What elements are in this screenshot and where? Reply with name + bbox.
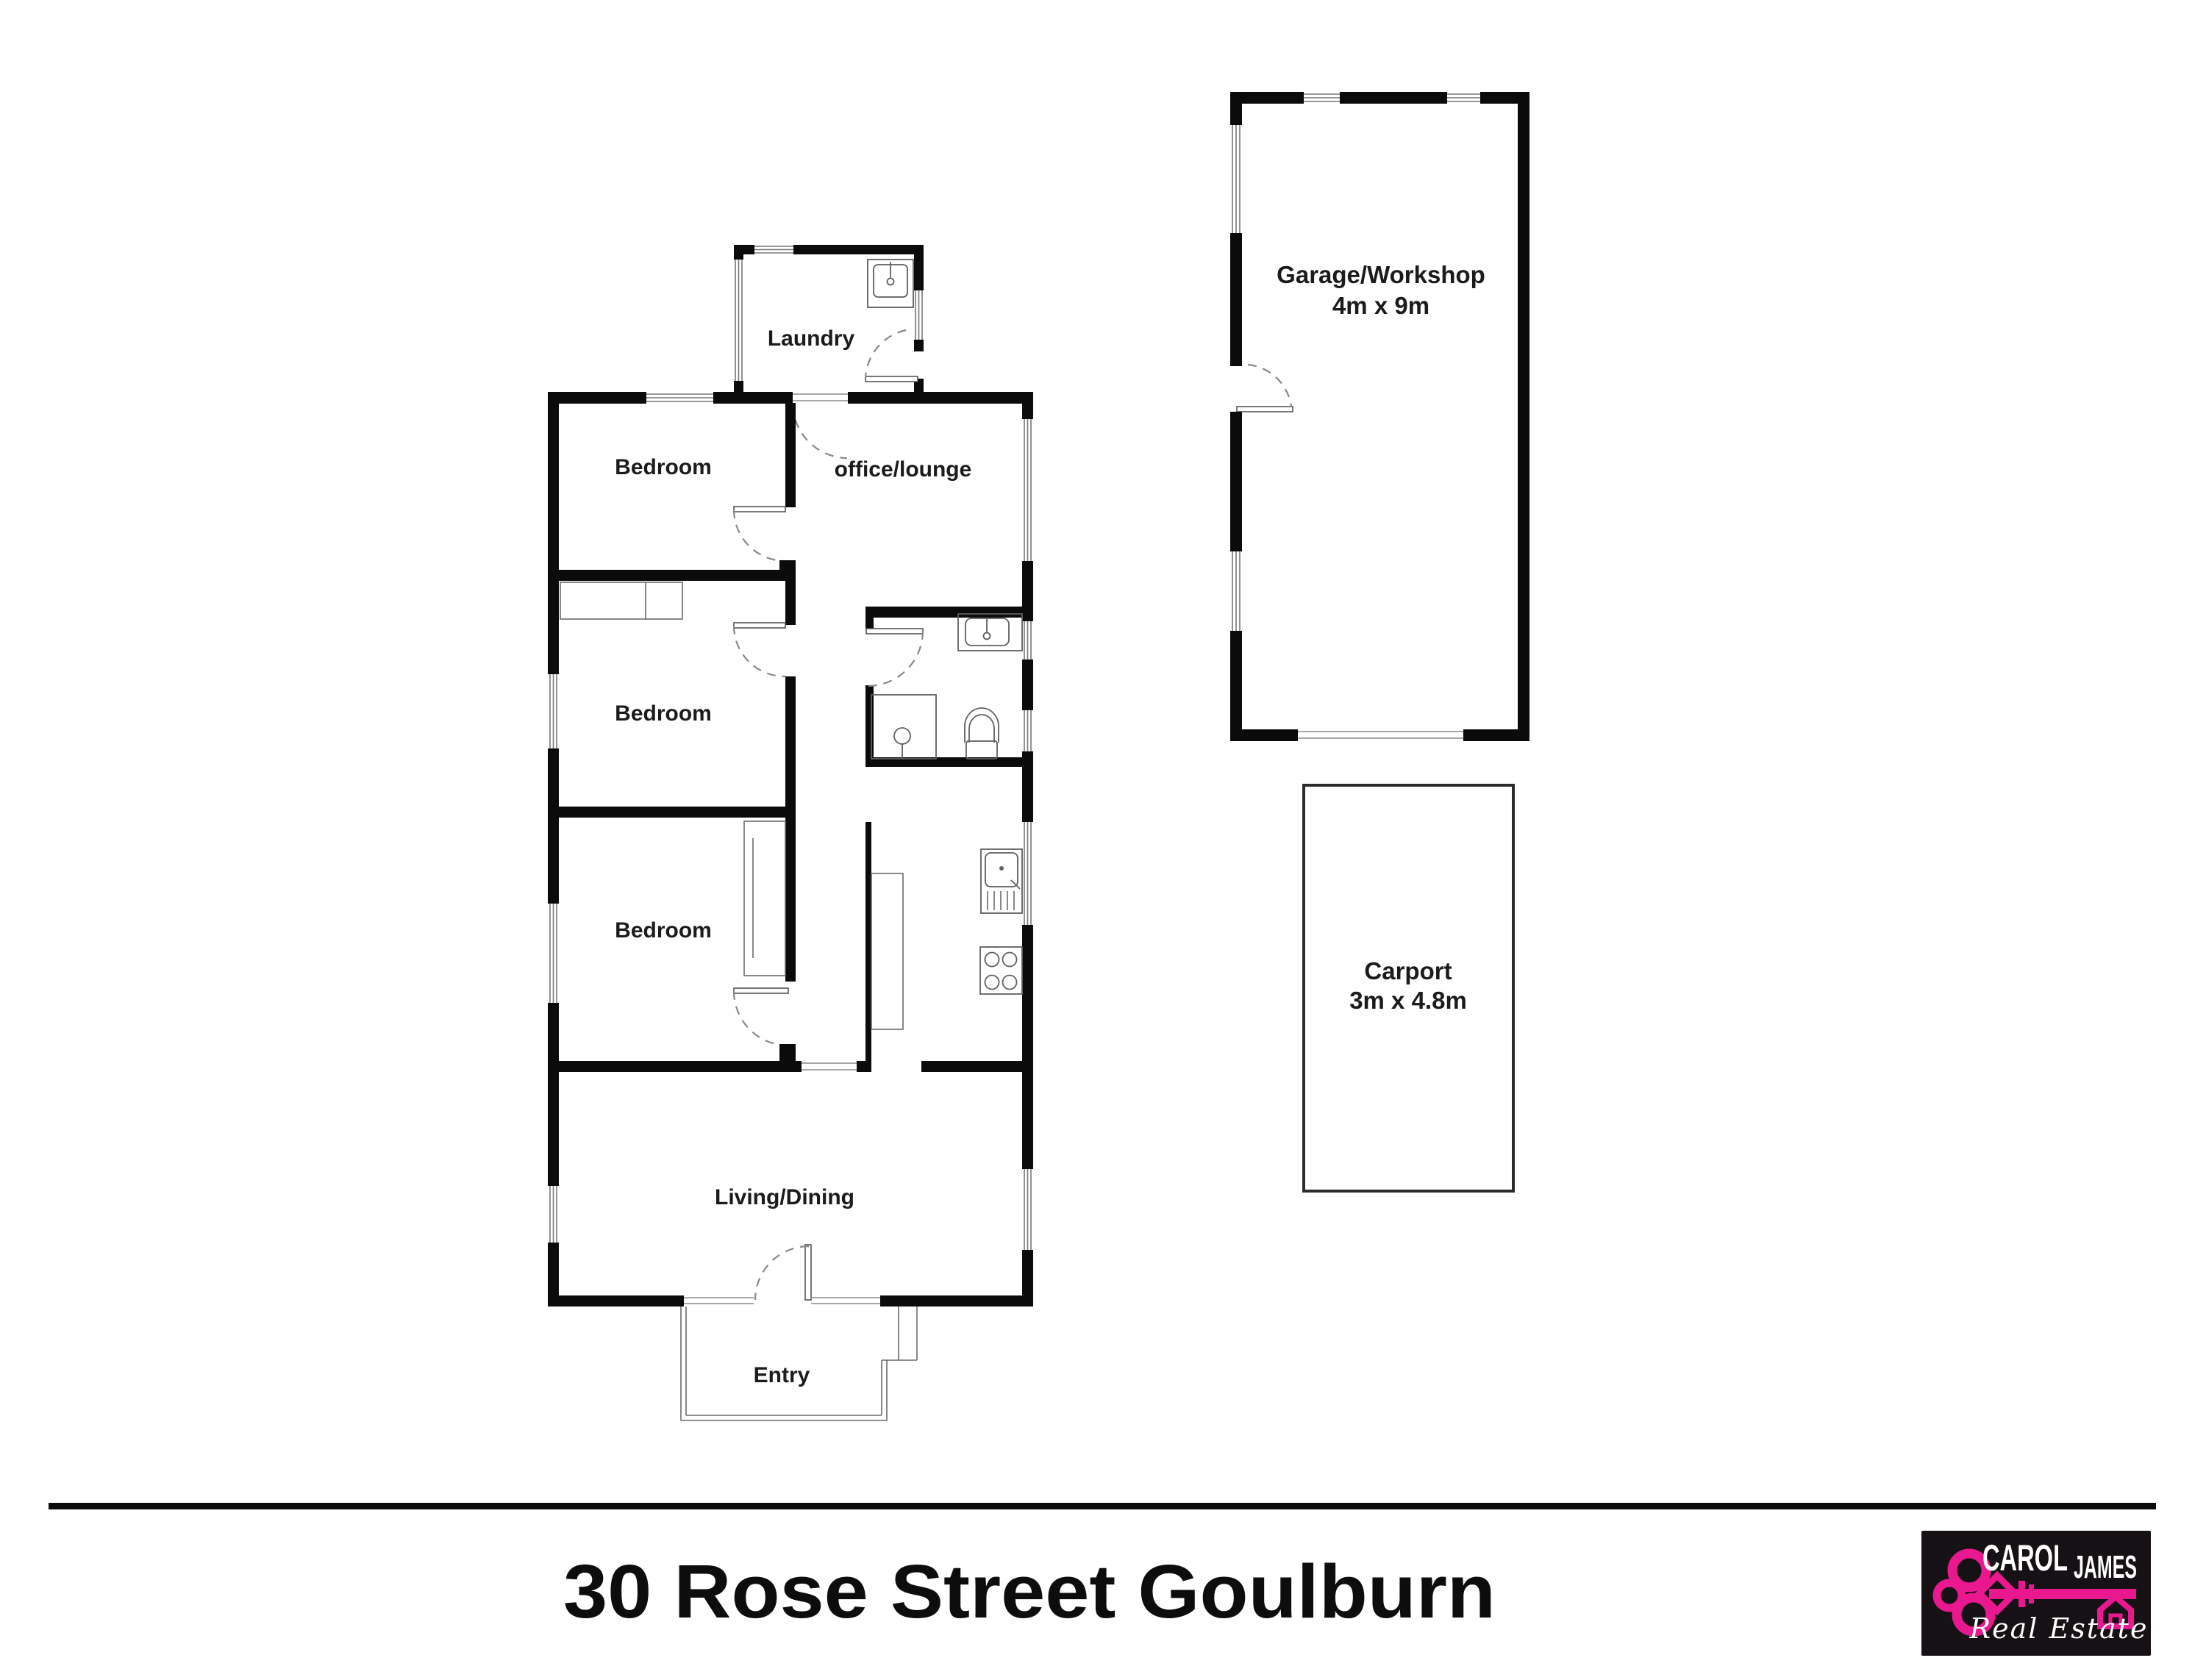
kitchen-bench <box>871 873 903 1029</box>
laundry-doorway-threshold <box>793 394 848 401</box>
address-title: 30 Rose Street Goulburn <box>563 1549 1496 1634</box>
garage-door-leaf <box>1237 407 1293 412</box>
window-garage-left-2 <box>1232 551 1240 631</box>
entry-door-leaf <box>805 1245 811 1300</box>
bedroom1-door-leaf <box>734 507 785 512</box>
label-laundry: Laundry <box>768 326 855 351</box>
floorplan-drawing: Bedroom Bedroom Bedroom Laundry office/l… <box>0 0 2206 1680</box>
bedroom3-door-leaf <box>734 988 788 993</box>
entry-door-arc <box>755 1246 809 1300</box>
shower <box>871 695 936 759</box>
label-bedroom1: Bedroom <box>615 455 712 479</box>
separator-line <box>49 1503 2156 1509</box>
label-living: Living/Dining <box>715 1185 854 1209</box>
agency-logo: CAROL JAMES Real Estate <box>1921 1531 2151 1656</box>
label-bedroom2: Bedroom <box>615 701 712 726</box>
carport: Carport 3m x 4.8m <box>1304 785 1513 1191</box>
bedroom3-partition <box>734 818 796 1061</box>
window-laundry-top <box>754 246 793 253</box>
label-bedroom3: Bedroom <box>615 918 712 943</box>
main-house: Bedroom Bedroom Bedroom Laundry office/l… <box>548 245 1033 1420</box>
laundry-door-leaf <box>865 376 918 382</box>
logo-brand-first: CAROL <box>1982 1537 2068 1579</box>
window-bedroom2-left <box>550 674 557 748</box>
bedroom1-door-arc <box>734 510 785 561</box>
bathroom-door-leaf <box>866 629 923 634</box>
window-garage-left-1 <box>1232 125 1240 233</box>
house-bottom-wall <box>548 1245 1033 1307</box>
cooktop <box>980 947 1022 994</box>
window-office-right <box>1024 419 1031 561</box>
kitchen-sink <box>981 849 1022 913</box>
window-bedroom3-left <box>550 904 557 1003</box>
bathroom <box>865 607 1033 767</box>
bedroom2-door-leaf <box>734 623 785 628</box>
label-garage-dims: 4m x 9m <box>1332 292 1429 319</box>
bedroom2-partition <box>548 581 796 818</box>
house-right-wall <box>1022 392 1033 1307</box>
window-laundry-right <box>915 290 922 340</box>
window-bedroom1-top <box>646 392 713 404</box>
kitchen <box>865 822 1022 1065</box>
window-bath-right-2 <box>1024 710 1031 751</box>
bedroom3-wardrobe <box>744 821 785 976</box>
garage-vehicle-door-opening <box>1298 732 1463 738</box>
laundry-to-office-door-arc <box>793 404 847 458</box>
window-garage-top-1 <box>1304 94 1340 101</box>
label-entry: Entry <box>754 1363 810 1387</box>
label-carport-dims: 3m x 4.8m <box>1349 987 1467 1014</box>
window-bath-right-1 <box>1024 621 1031 660</box>
label-office: office/lounge <box>835 457 972 482</box>
bedroom2-wardrobe <box>560 582 682 619</box>
garage-door-arc <box>1248 365 1291 407</box>
laundry-tub <box>868 260 913 307</box>
bedroom1-partition <box>548 403 796 581</box>
entry-steps <box>882 1307 917 1360</box>
window-laundry-left <box>735 260 742 381</box>
garage: Garage/Workshop 4m x 9m <box>1230 92 1529 741</box>
label-carport-name: Carport <box>1364 957 1452 984</box>
bathroom-vanity <box>958 614 1022 651</box>
window-kitchen-right <box>1024 822 1031 925</box>
laundry-annex <box>734 245 924 458</box>
window-living-left <box>550 1186 557 1243</box>
label-garage-name: Garage/Workshop <box>1277 261 1485 288</box>
logo-brand-second: JAMES <box>2074 1549 2137 1585</box>
house-left-wall <box>548 392 559 1307</box>
logo-tagline: Real Estate <box>1969 1612 2149 1645</box>
laundry-door-arc <box>865 330 906 379</box>
bathroom-door-arc <box>868 631 923 686</box>
house-top-wall <box>548 392 1033 404</box>
bedroom3-door-arc <box>734 991 788 1045</box>
window-living-right <box>1024 1169 1031 1250</box>
toilet <box>965 708 999 759</box>
living-top-wall <box>548 1061 1033 1072</box>
bedroom2-door-arc <box>734 626 785 676</box>
floorplan-page: Bedroom Bedroom Bedroom Laundry office/l… <box>0 0 2206 1680</box>
footer: 30 Rose Street Goulburn CAROL JAMES Real… <box>49 1503 2156 1656</box>
window-garage-top-2 <box>1447 94 1480 101</box>
